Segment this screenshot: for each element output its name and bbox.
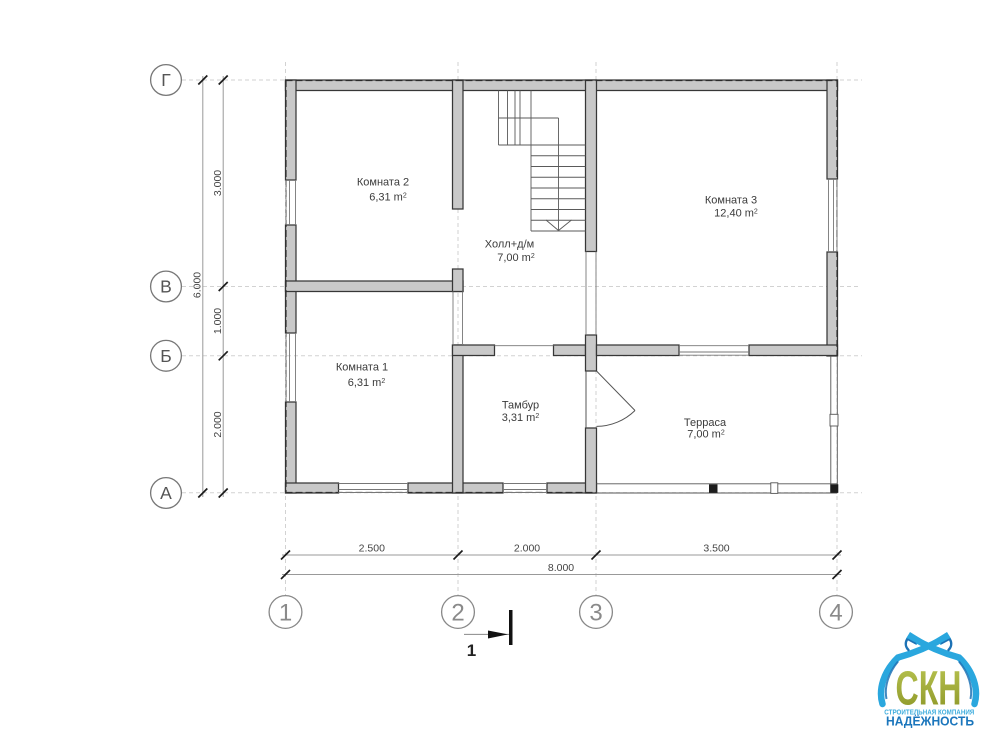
svg-text:2.500: 2.500 (359, 543, 385, 555)
svg-text:7,00 m2: 7,00 m2 (687, 429, 725, 441)
svg-text:4: 4 (829, 600, 842, 627)
svg-text:НАДЁЖНОСТЬ: НАДЁЖНОСТЬ (886, 714, 974, 729)
svg-text:3: 3 (589, 600, 602, 627)
svg-text:1: 1 (467, 641, 476, 660)
svg-text:А: А (160, 483, 172, 503)
svg-text:2.000: 2.000 (212, 411, 224, 437)
svg-text:Б: Б (160, 346, 171, 366)
svg-text:7,00 m2: 7,00 m2 (497, 252, 535, 264)
svg-text:12,40 m2: 12,40 m2 (714, 208, 758, 220)
svg-text:Комната 2: Комната 2 (357, 177, 409, 189)
svg-text:6.000: 6.000 (192, 272, 204, 298)
svg-text:3,31 m2: 3,31 m2 (502, 412, 540, 424)
svg-text:Комната 3: Комната 3 (705, 195, 757, 207)
svg-text:2: 2 (451, 600, 464, 627)
svg-text:Тамбур: Тамбур (502, 400, 539, 412)
svg-text:6,31 m2: 6,31 m2 (369, 192, 407, 204)
svg-text:8.000: 8.000 (548, 562, 574, 574)
svg-text:В: В (160, 277, 172, 297)
svg-text:Г: Г (161, 70, 171, 90)
svg-text:1.000: 1.000 (212, 308, 224, 334)
svg-text:3.500: 3.500 (703, 543, 729, 555)
svg-text:2.000: 2.000 (514, 543, 540, 555)
svg-text:Комната 1: Комната 1 (336, 362, 388, 374)
svg-text:Холл+д/м: Холл+д/м (485, 239, 534, 251)
svg-text:6,31 m2: 6,31 m2 (348, 377, 386, 389)
svg-text:3.000: 3.000 (212, 170, 224, 196)
svg-text:1: 1 (279, 600, 292, 627)
svg-text:Терраса: Терраса (684, 417, 727, 429)
